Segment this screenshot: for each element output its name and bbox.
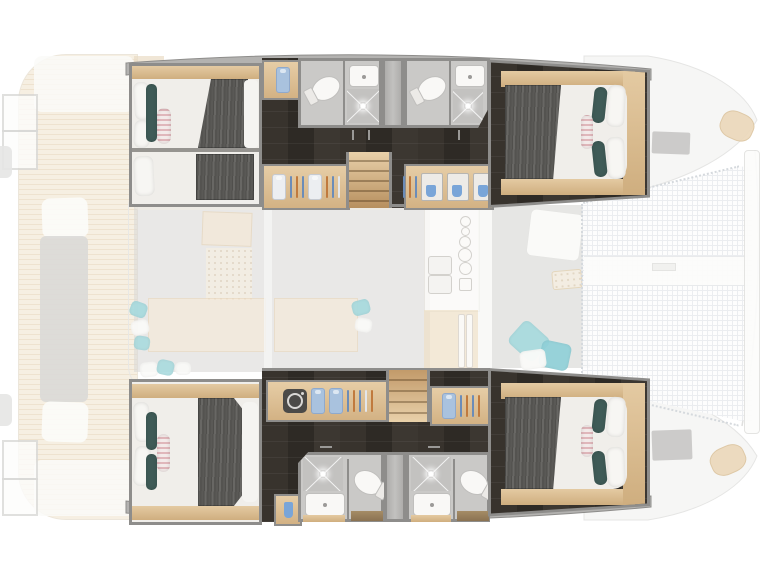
bed-blanket xyxy=(198,79,248,148)
bathroom-wall xyxy=(343,61,345,125)
striped-pillow xyxy=(581,115,593,149)
sparkle-icon xyxy=(464,102,472,110)
hanger-icon xyxy=(415,176,417,198)
drawer-towel-icon xyxy=(447,173,469,201)
hanger-icon xyxy=(302,176,304,198)
hanger-icon xyxy=(326,176,328,198)
bed-frame-seam xyxy=(132,148,259,152)
bathroom-floor-wood xyxy=(411,515,451,522)
pillow xyxy=(606,137,626,180)
pillow xyxy=(606,85,626,128)
sparkle-icon xyxy=(359,102,367,110)
striped-pillow xyxy=(157,108,171,144)
bed-blanket xyxy=(198,398,244,506)
striped-pillow xyxy=(157,434,170,472)
sink-icon xyxy=(349,65,379,87)
teal-bolster-pillow xyxy=(146,412,157,450)
bed-blanket xyxy=(505,397,561,489)
shower-floor xyxy=(347,89,379,123)
shower-floor xyxy=(303,457,343,491)
bathroom-floor-wood xyxy=(457,511,489,521)
starboard-staircase xyxy=(386,370,430,422)
faucet-mark xyxy=(320,446,332,448)
faucet-mark xyxy=(428,446,440,448)
bed-mattress-edge xyxy=(244,80,258,148)
shirt-icon xyxy=(311,388,325,414)
bathroom-wall xyxy=(347,459,349,521)
washing-machine-icon xyxy=(283,389,307,413)
catamaran-floor-plan xyxy=(0,0,768,576)
sink-icon xyxy=(455,65,485,87)
cabin-floor xyxy=(491,61,647,205)
toilet-icon xyxy=(307,71,344,105)
cabin-shelf xyxy=(132,66,259,79)
hanger-icon xyxy=(338,176,340,198)
hanger-icon xyxy=(460,395,462,417)
toilet-icon xyxy=(413,71,450,105)
starboard-utility-wardrobe xyxy=(266,380,390,422)
bed-platform xyxy=(501,489,635,505)
technical-shaft xyxy=(384,452,406,522)
hanger-icon xyxy=(478,395,480,417)
teal-bolster-pillow xyxy=(146,84,157,142)
sink-icon xyxy=(413,493,451,516)
cabin-floor xyxy=(491,371,647,515)
hanger-icon xyxy=(365,390,367,412)
technical-shaft xyxy=(382,58,404,128)
hanger-icon xyxy=(466,395,468,417)
hanger-icon xyxy=(371,390,373,412)
hanger-icon xyxy=(403,176,405,198)
toilet-icon xyxy=(349,465,386,500)
shirt-icon xyxy=(272,174,286,200)
sparkle-icon xyxy=(319,470,327,478)
port-staircase xyxy=(346,152,392,208)
bathroom-wall xyxy=(449,61,451,125)
striped-pillow xyxy=(581,425,593,457)
drawer-towel-icon xyxy=(421,173,443,201)
bed-blanket xyxy=(505,85,561,179)
starboard-wardrobe-hangers xyxy=(430,386,492,426)
bathroom-wall xyxy=(453,459,455,521)
hanger-icon xyxy=(347,390,349,412)
pillow xyxy=(133,156,155,197)
hanger-icon xyxy=(359,390,361,412)
sparkle-icon xyxy=(427,470,435,478)
hanger-icon xyxy=(409,176,411,198)
bed-mattress-edge xyxy=(242,402,258,502)
bathroom-floor-wood xyxy=(303,515,345,522)
port-wardrobe-drawers xyxy=(404,164,494,210)
sink-icon xyxy=(305,493,345,516)
berth-blanket xyxy=(196,154,254,200)
cabin-shelf xyxy=(132,506,259,520)
pillow xyxy=(606,447,626,488)
hanger-icon xyxy=(290,176,292,198)
port-wardrobe-hangers xyxy=(262,164,350,210)
hanger-icon xyxy=(472,395,474,417)
starboard-aft-cabin xyxy=(129,379,262,525)
door-frame-mark xyxy=(352,130,354,140)
shirt-icon xyxy=(329,388,343,414)
shower-floor xyxy=(411,457,451,491)
pillow xyxy=(606,397,626,438)
shower-floor xyxy=(453,89,483,123)
starboard-aft-bathroom xyxy=(298,452,384,522)
door-frame-mark xyxy=(368,130,370,140)
wetsuit-icon xyxy=(284,502,293,518)
door-frame-mark xyxy=(458,130,460,140)
toilet-icon xyxy=(455,465,492,500)
shirt-icon xyxy=(276,67,290,93)
hanger-icon xyxy=(296,176,298,198)
shirt-icon xyxy=(308,174,322,200)
starboard-forward-bathroom xyxy=(406,452,490,522)
port-aft-bathroom xyxy=(298,58,382,128)
port-forward-bathroom xyxy=(404,58,490,128)
starboard-forward-cabin xyxy=(488,368,650,518)
port-forward-cabin xyxy=(488,58,650,208)
port-aft-cabin xyxy=(129,63,262,207)
teal-bolster-pillow xyxy=(146,454,157,490)
cabin-shelf xyxy=(132,384,259,398)
gear-cabinet xyxy=(274,494,302,526)
hanger-icon xyxy=(332,176,334,198)
bed-platform xyxy=(501,179,635,195)
shirt-icon xyxy=(442,393,456,419)
hanger-icon xyxy=(353,390,355,412)
bathroom-floor-wood xyxy=(351,511,383,521)
starboard-hull-inner-edge xyxy=(262,368,490,371)
